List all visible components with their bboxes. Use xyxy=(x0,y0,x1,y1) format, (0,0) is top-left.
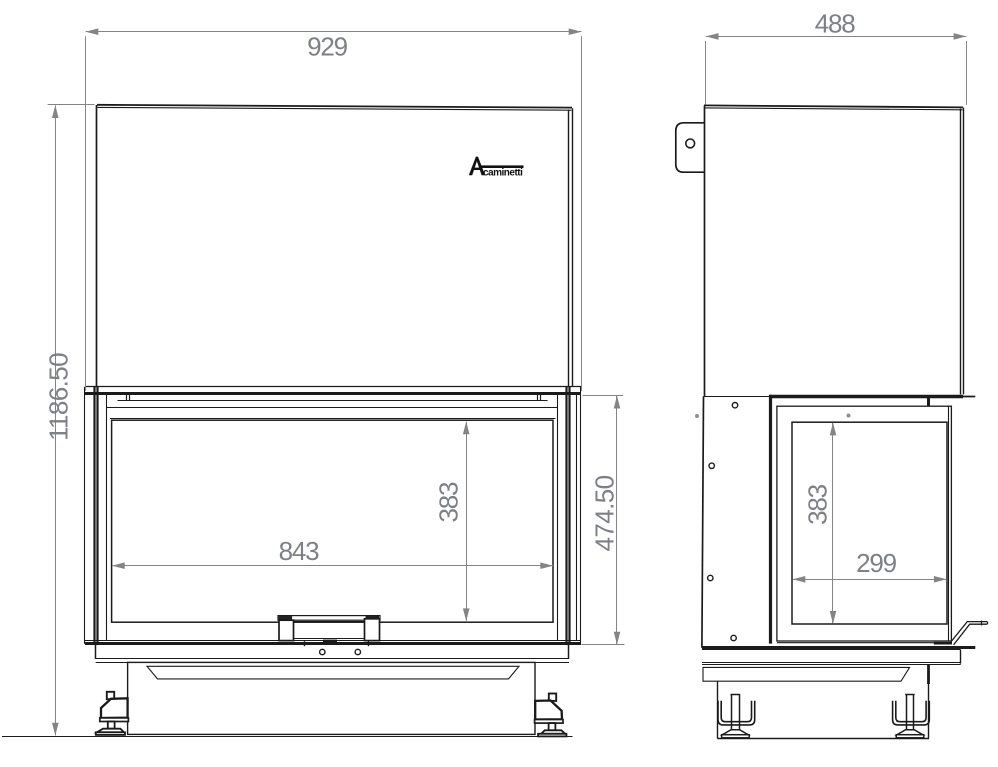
svg-text:1186.50: 1186.50 xyxy=(44,353,74,441)
svg-text:843: 843 xyxy=(279,536,320,566)
svg-text:383: 383 xyxy=(434,482,464,523)
svg-text:caminetti: caminetti xyxy=(483,168,523,179)
svg-text:474.50: 474.50 xyxy=(590,475,620,551)
svg-text:299: 299 xyxy=(856,548,897,578)
svg-text:383: 383 xyxy=(803,484,833,525)
svg-text:488: 488 xyxy=(815,9,856,39)
svg-text:929: 929 xyxy=(307,32,348,62)
